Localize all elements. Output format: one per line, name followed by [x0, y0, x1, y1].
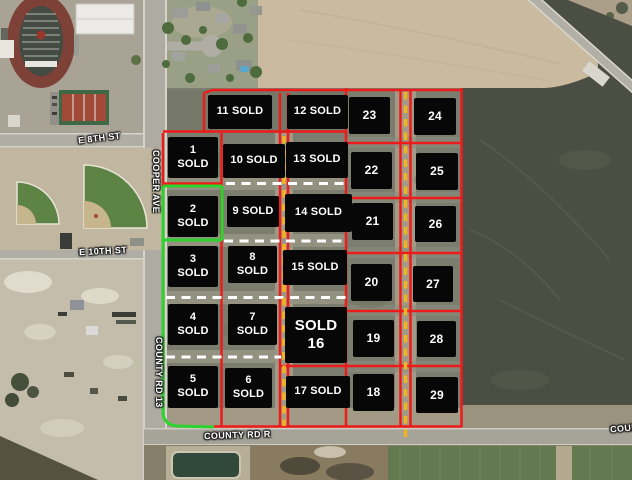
lot-label-13: 13 SOLD — [286, 142, 348, 178]
lot-label-26: 26 — [415, 206, 456, 242]
road-label-county-rd-13: COUNTY RD 13 — [154, 337, 164, 408]
lot-label-17: 17 SOLD — [286, 376, 350, 408]
lot-label-16: SOLD 16 — [285, 307, 347, 363]
lot-label-29: 29 — [416, 377, 458, 413]
lot-label-12: 12 SOLD — [287, 95, 348, 129]
lot-label-3: 3 SOLD — [168, 246, 218, 287]
lot-label-27: 27 — [413, 266, 453, 302]
lot-label-21: 21 — [352, 203, 393, 240]
lot-label-25: 25 — [416, 153, 458, 190]
parcel-boundaries — [0, 0, 632, 480]
lot-label-6: 6 SOLD — [225, 368, 272, 408]
lot-label-1: 1 SOLD — [168, 137, 218, 178]
lot-label-18: 18 — [353, 374, 394, 411]
lot-label-28: 28 — [417, 321, 456, 357]
lot-label-23: 23 — [349, 97, 390, 134]
lot-label-15: 15 SOLD — [283, 250, 347, 285]
lot-label-8: 8 SOLD — [228, 246, 277, 283]
lot-label-7: 7 SOLD — [228, 304, 277, 345]
lot-label-11: 11 SOLD — [208, 95, 272, 129]
road-label-county-rd-right: COUNT — [610, 422, 632, 435]
lot-label-5: 5 SOLD — [168, 366, 218, 408]
lot-label-20: 20 — [351, 264, 392, 301]
lot-label-22: 22 — [351, 152, 392, 189]
aerial-parcel-map: 1 SOLD 2 SOLD 3 SOLD 4 SOLD 5 SOLD 11 SO… — [0, 0, 632, 480]
road-label-cooper-ave: COOPER AVE — [151, 150, 161, 213]
lot-label-2: 2 SOLD — [168, 196, 218, 237]
lot-label-24: 24 — [414, 98, 456, 135]
lot-label-14: 14 SOLD — [285, 194, 352, 232]
lot-label-4: 4 SOLD — [168, 304, 218, 345]
lot-label-9: 9 SOLD — [227, 196, 279, 227]
lot-label-10: 10 SOLD — [223, 144, 285, 178]
lot-label-19: 19 — [353, 320, 394, 357]
